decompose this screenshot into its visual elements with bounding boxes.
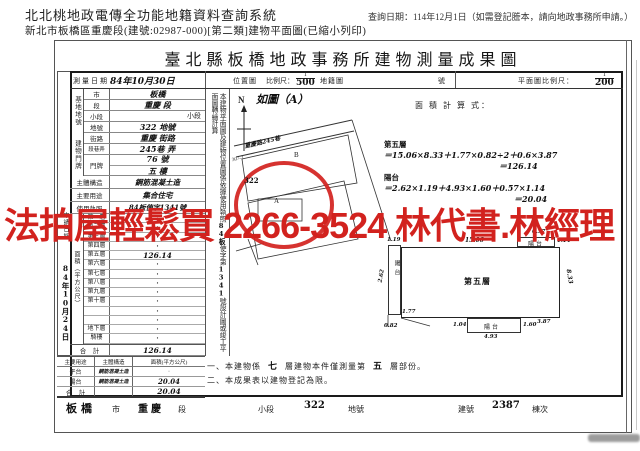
balcony-left: 陽台 <box>388 245 401 315</box>
formula-line: ＝15.06×8.33＋1.77×0.82÷2＋0.6×3.87 <box>384 150 614 161</box>
building-number-label: 建號 <box>458 404 474 415</box>
annex-header: 主體構造 <box>95 357 133 366</box>
note-text: 層建物本件僅測量第 <box>285 362 366 371</box>
survey-date-label: 測量日期 <box>73 76 109 86</box>
form-title: 臺北縣板橋地政事務所建物測量成果圖 <box>54 46 632 70</box>
location-map-label: 位置圖 <box>233 76 257 86</box>
document-subtitle: 新北市板橋區重慶段(建號:02987-000)[第二類]建物平面圖(已縮小列印) <box>25 23 366 38</box>
floor-area: · <box>110 288 205 296</box>
floor-area: 126.14 <box>110 251 205 259</box>
annex-structure: 鋼筋混凝土造 <box>95 377 133 386</box>
lot-label: 地號 <box>348 404 364 415</box>
row-label: 街路 <box>84 133 110 143</box>
dim-balcony-left-height: 2.62 <box>378 269 386 283</box>
balcony-bottom: 陽台 <box>467 318 521 333</box>
dim-balcony-bottom-height: 1.60 <box>523 322 536 328</box>
north-label: N <box>238 95 245 105</box>
dim-right-height: 8.33 <box>565 269 574 285</box>
area-row: 第十層· <box>84 297 205 306</box>
note-2: 二、本成果表以建物登記為限。 <box>207 375 333 386</box>
cadastral-map-label: 地籍圖 <box>320 76 344 86</box>
door-number: 76 號 <box>110 154 205 166</box>
floor-area: · <box>110 270 205 278</box>
map-number-label: 號 <box>438 76 445 86</box>
scale-label: 比例尺： <box>266 76 294 86</box>
area-row: · <box>84 307 205 316</box>
annex-empty-cell <box>95 387 133 396</box>
parcel-322-label: 322 <box>244 176 259 185</box>
annex-structure: 鋼筋混凝土造 <box>95 367 133 376</box>
area-row: 第五層126.14 <box>84 251 205 260</box>
total-value: 126.14 <box>110 345 205 355</box>
note-text: 層部份。 <box>390 362 426 371</box>
location-scale-fraction: 1 500 <box>296 72 315 88</box>
section-hand: 重慶 <box>138 400 164 415</box>
floor-area: · <box>110 260 205 268</box>
unit-label: 棟次 <box>532 404 548 415</box>
plan-scale-fraction: 1 200 <box>595 72 614 88</box>
formula-balcony-title: 陽台 <box>384 172 614 183</box>
survey-date-value: 84年10月30日 <box>110 74 175 87</box>
annex-area: 20.04 <box>133 377 205 386</box>
floor-label: 騎樓 <box>84 334 110 342</box>
floor-label: 第六層 <box>84 260 110 268</box>
subsection-label: 小段 <box>258 404 274 415</box>
note-text: 一、本建物係 <box>207 362 261 371</box>
row-value: 322 地號 <box>110 122 205 132</box>
section-label: 段 <box>178 404 186 415</box>
structure-value: 鋼筋混凝土造 <box>110 176 205 188</box>
table-row: 地號 322 地號 <box>84 122 205 133</box>
table-row-door: 門牌 76 號 五 樓 <box>84 155 205 176</box>
floor-label: 第十層 <box>84 297 110 305</box>
plan-scale-label: 平面圖比例尺： <box>518 76 574 86</box>
strip-hand-value: 1341 <box>217 265 225 297</box>
area-formula-block: 第五層 ＝15.06×8.33＋1.77×0.82÷2＋0.6×3.87 ＝12… <box>384 139 614 205</box>
structure-row: 主體構造 鋼筋混凝土造 <box>70 176 205 189</box>
floor-label <box>84 316 110 324</box>
site-group-label: 基地地號 <box>70 89 84 133</box>
annex-total-row: 合 計 20.04 <box>57 387 205 398</box>
area-row: 第七層· <box>84 270 205 279</box>
floor-area: · <box>110 307 205 315</box>
floor-label: 第五層 <box>84 251 110 259</box>
annex-use: 陽台 <box>57 377 95 386</box>
map-figure-ref: 如圖（A） <box>256 91 309 107</box>
annex-table: 主要用途 主體構造 面積(平方公尺) 平台 鋼筋混凝土造 · 陽台 鋼筋混凝土造… <box>57 356 205 398</box>
note-1: 一、本建物係 七 層建物本件僅測量第 五 層部份。 <box>207 359 426 372</box>
annex-total-label: 合 計 <box>57 387 95 396</box>
annex-row: 陽台 鋼筋混凝土造 20.04 <box>57 377 205 387</box>
building-number-hand: 2387 <box>492 400 520 411</box>
table-row: 街路 重慶 街路 <box>84 133 205 144</box>
table-row: 小段 小段 <box>84 111 205 122</box>
floor-plan-main-rect: 第五層 <box>401 247 560 318</box>
area-row: 第八層· <box>84 279 205 288</box>
row-value: 小段 <box>110 111 205 121</box>
area-row: 第六層· <box>84 260 205 269</box>
row-value: 板橋 <box>110 89 205 99</box>
floor-label: 地下層 <box>84 325 110 333</box>
door-values: 76 號 五 樓 <box>110 155 205 175</box>
row-value: 重慶 街路 <box>110 133 205 143</box>
floor-area: · <box>110 316 205 324</box>
annex-total-value: 20.04 <box>133 387 205 396</box>
formula-result: ＝126.14 <box>384 161 614 172</box>
scan-smudge <box>588 434 640 442</box>
row-value: 245巷 弄 <box>110 144 205 154</box>
row-value: 重慶 段 <box>110 100 205 110</box>
floor-label: 第七層 <box>84 270 110 278</box>
form-header-row: 測量日期 84年10月30日 位置圖 比例尺： 1 500 地籍圖 號 平面圖比… <box>70 71 623 89</box>
floor-area: · <box>110 325 205 333</box>
area-row: 地下層· <box>84 325 205 334</box>
plan-scale-denominator: 200 <box>595 79 614 88</box>
floor-label: 第九層 <box>84 288 110 296</box>
annex-header-row: 主要用途 主體構造 面積(平方公尺) <box>57 357 205 367</box>
area-formula-label: 面 積 計 算 式： <box>415 100 491 111</box>
formula-line: ＝2.62×1.19＋4.93×1.60＋0.57×1.14 <box>384 183 614 194</box>
formula-floor-title: 第五層 <box>384 139 614 150</box>
balcony-left-label: 陽台 <box>392 260 401 278</box>
area-row: 騎樓· <box>84 334 205 343</box>
row-label: 段巷弄 <box>84 144 110 154</box>
floor-label <box>84 307 110 315</box>
door-label: 門牌 <box>84 155 110 175</box>
building-group-label: 建物門牌 <box>70 133 84 176</box>
table-row: 段 重慶 段 <box>84 100 205 111</box>
dim-balcony-bottom-left: 1.04 <box>453 322 466 328</box>
lot-hand: 322 <box>304 400 325 411</box>
row-label: 小段 <box>84 111 110 121</box>
table-row: 市 板橋 <box>84 89 205 100</box>
note-hand-measured-floor: 五 <box>369 362 387 372</box>
row-label: 地號 <box>84 122 110 132</box>
dim-bottom-left-a: 1.77 <box>402 309 415 315</box>
dim-bottom-left-b: 0.82 <box>384 323 397 329</box>
divider <box>205 71 206 88</box>
floor-area: · <box>110 279 205 287</box>
area-row: · <box>84 316 205 325</box>
scale-denominator: 500 <box>296 79 315 88</box>
floor-area: · <box>110 297 205 305</box>
annex-row: 平台 鋼筋混凝土造 · <box>57 367 205 377</box>
area-row: 第九層· <box>84 288 205 297</box>
city-label: 市 <box>112 404 120 415</box>
parcel-b-label: B <box>294 151 299 159</box>
bottom-id-row: 板橋 市 重慶 段 小段 322 地號 建號 2387 棟次 <box>54 399 632 421</box>
red-watermark-text: 法拍屋輕鬆買 2266-3524 林代書.林經理 <box>4 197 638 249</box>
structure-label: 主體構造 <box>70 176 110 188</box>
divider <box>455 71 456 88</box>
system-title: 北北桃地政電傳全功能地籍資料查詢系統 <box>25 5 277 24</box>
floor-label: 第八層 <box>84 279 110 287</box>
total-label: 合 計 <box>70 345 110 355</box>
floor-plan-room-label: 第五層 <box>464 276 491 287</box>
door-floor: 五 樓 <box>110 166 205 177</box>
query-date: 查詢日期：114年12月1日（如需登記謄本，請向地政事務所申請。） <box>368 10 633 23</box>
dim-bottom-right: 3.87 <box>537 319 550 325</box>
balcony-bottom-label: 陽台 <box>484 322 500 331</box>
note-hand-floors: 七 <box>264 362 282 372</box>
total-row: 合 計 126.14 <box>70 344 205 356</box>
city-hand: 板橋 <box>66 400 96 416</box>
row-label: 市 <box>84 89 110 99</box>
annex-area: · <box>133 367 205 376</box>
annex-use: 平台 <box>57 367 95 376</box>
row-label: 段 <box>84 100 110 110</box>
dim-balcony-bottom-width: 4.93 <box>484 334 497 340</box>
annex-header: 主要用途 <box>57 357 95 366</box>
annex-header: 面積(平方公尺) <box>133 357 205 366</box>
floor-area: · <box>110 334 205 342</box>
